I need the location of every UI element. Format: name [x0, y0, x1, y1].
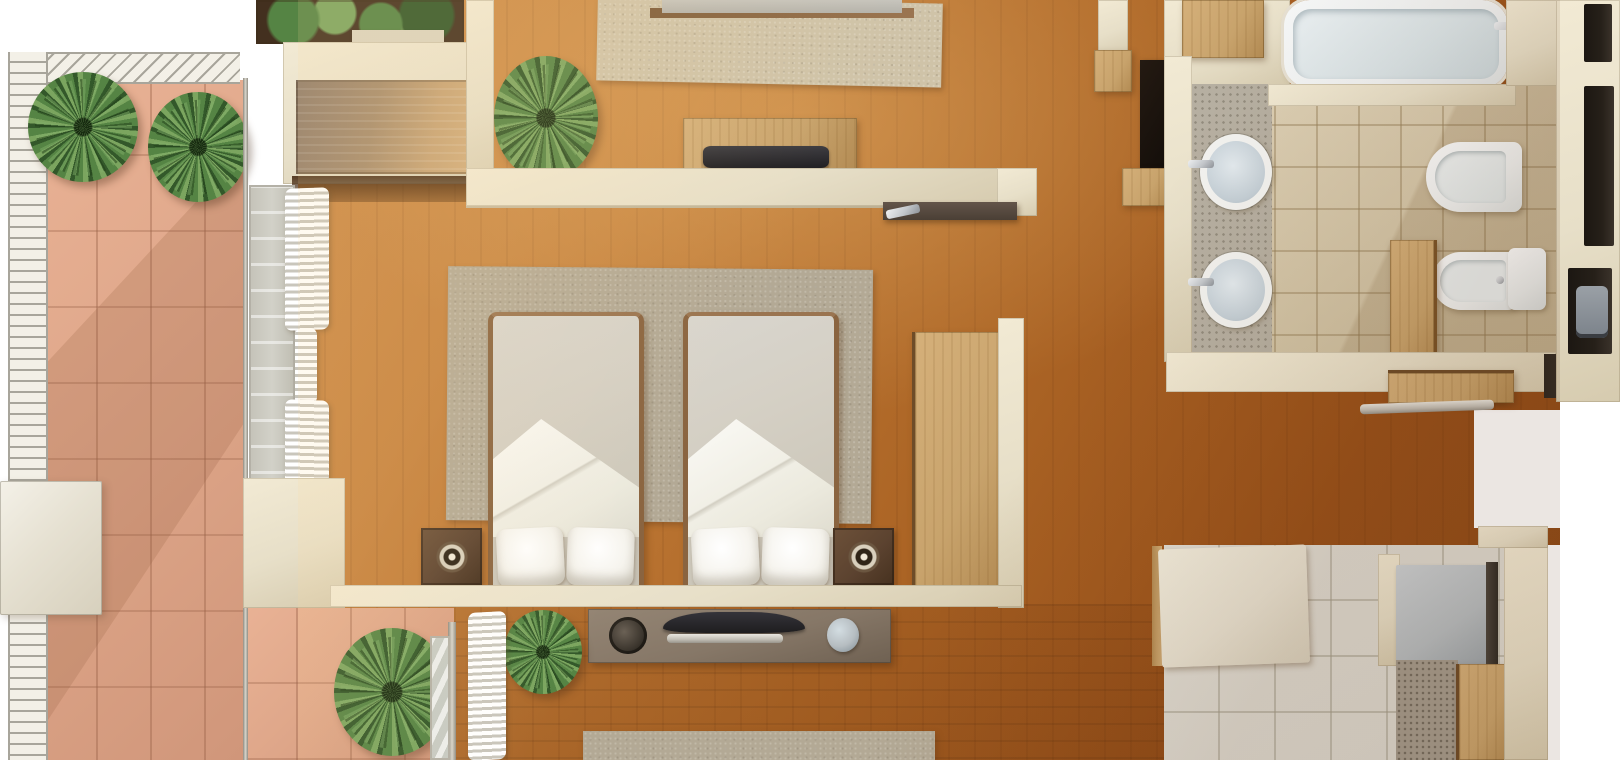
terrace-palm-plant-2: [148, 92, 248, 202]
twin-bedroom-bottom-wall: [330, 585, 1022, 607]
right-bed: [1158, 544, 1310, 667]
niche-canister: [1576, 286, 1608, 338]
terrace-palm-plant-1: [28, 72, 138, 182]
laptop: [703, 146, 829, 168]
toilet: [1426, 142, 1522, 212]
tv: [663, 612, 805, 633]
hall-mirror-foot: [1122, 168, 1168, 206]
round-speaker: [434, 539, 470, 575]
speaker-ball: [827, 618, 859, 652]
curtain-bunch-top: [285, 187, 329, 331]
bathroom-west-wall: [1164, 56, 1192, 362]
bed-pillow: [496, 526, 566, 587]
round-speaker: [846, 539, 882, 575]
right-bedroom-bench: [1456, 664, 1511, 760]
bathtub-basin: [1293, 9, 1499, 79]
nightstand-left: [421, 528, 482, 585]
bed-pillow: [566, 527, 635, 587]
background-right-lower: [1548, 545, 1620, 760]
upper-bedroom-right-wall: [1098, 0, 1128, 56]
curtain-strip-middle: [295, 328, 317, 404]
right-bedroom-right-wall: [1504, 545, 1548, 760]
bathtub: [1284, 0, 1508, 88]
wood-bench-shelf: [1388, 370, 1514, 403]
bathroom-sink-bottom: [1200, 252, 1272, 328]
right-bedroom-rug: [1396, 660, 1458, 760]
terrace-outdoor-unit: [0, 481, 102, 615]
lower-bedroom-rug: [583, 731, 935, 760]
single-bed-right: [683, 312, 839, 589]
sink-faucet-top: [1188, 160, 1214, 168]
nightstand-right: [833, 528, 894, 585]
sink-faucet-bottom: [1188, 278, 1214, 286]
bed-pillow: [761, 527, 830, 587]
twin-bedroom-right-wall: [998, 318, 1024, 608]
bidet-tank: [1508, 248, 1546, 310]
storage-niche-2: [1584, 86, 1614, 246]
storage-niche-1: [1584, 4, 1612, 62]
bathroom-sink-top: [1200, 134, 1272, 210]
upper-bedroom-palm: [494, 56, 598, 180]
upper-bed-mattress: [662, 0, 902, 13]
floor-plan-render: [0, 0, 1620, 760]
console-plant-pot: [609, 617, 647, 654]
background-top-left: [0, 0, 244, 52]
fern-plant: [504, 610, 582, 694]
lower-door-glass: [430, 636, 450, 760]
bed-folded-sheet: [493, 419, 639, 537]
bathtub-right-wall: [1506, 0, 1558, 86]
built-in-wardrobe-doors: [296, 80, 468, 174]
bathroom-wood-inset: [1182, 0, 1264, 58]
grey-cabinet: [1396, 565, 1490, 665]
soundbar: [667, 634, 783, 643]
bathtub-ledge: [1268, 84, 1516, 106]
single-bed-left: [488, 312, 644, 589]
bidet-faucet-dots: [1496, 276, 1504, 284]
terrace-door-track: [243, 78, 248, 760]
lower-door-curtain: [468, 611, 506, 760]
hall-wall-shelf: [1094, 50, 1132, 92]
tall-wardrobe: [912, 332, 1007, 590]
grey-cabinet-edge: [1486, 562, 1498, 666]
right-bedroom-step-wall: [1478, 526, 1548, 548]
background-notch-right: [1474, 410, 1620, 528]
bed-folded-sheet: [688, 419, 834, 537]
bed-pillow: [691, 526, 761, 587]
